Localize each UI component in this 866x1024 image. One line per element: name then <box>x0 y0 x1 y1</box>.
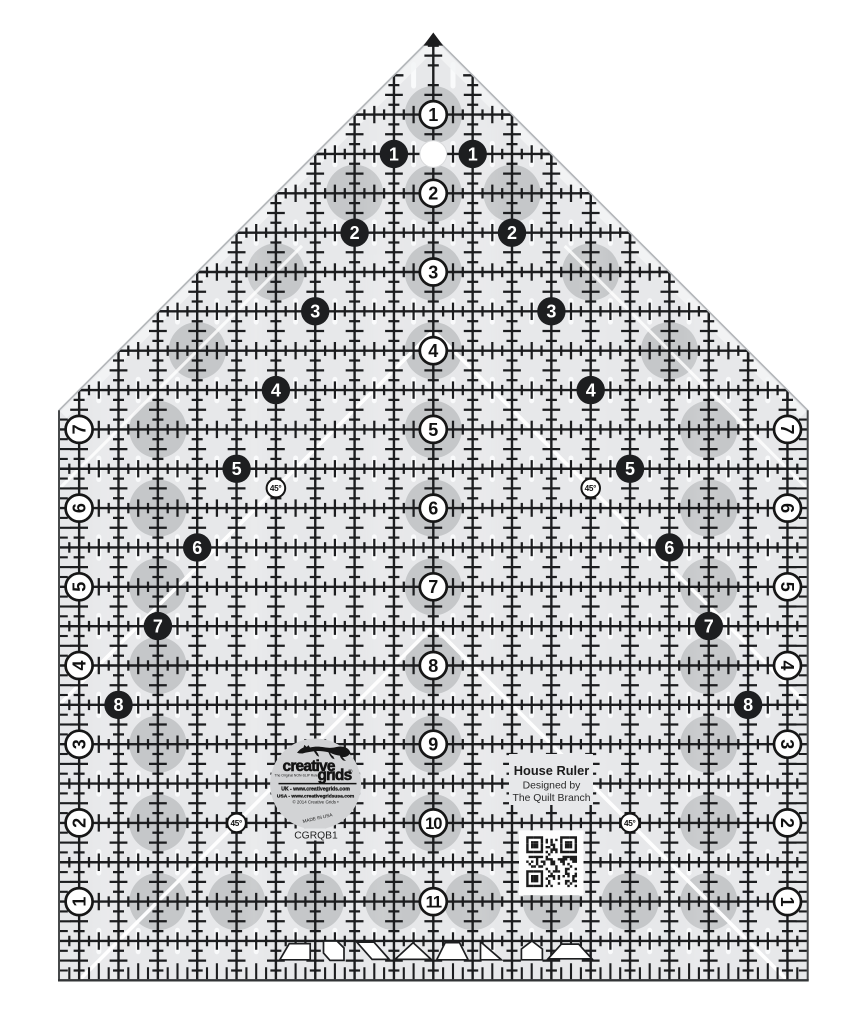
svg-text:8: 8 <box>428 656 438 676</box>
svg-text:4: 4 <box>777 660 797 670</box>
svg-text:5: 5 <box>232 459 242 479</box>
svg-text:10: 10 <box>425 815 442 833</box>
svg-text:7: 7 <box>704 617 714 637</box>
svg-text:1: 1 <box>468 144 478 164</box>
svg-text:4: 4 <box>428 341 438 361</box>
svg-text:© 2014 Creative Grids •: © 2014 Creative Grids • <box>292 799 339 804</box>
svg-text:2: 2 <box>350 223 360 243</box>
svg-text:UK - www.creativegrids.com: UK - www.creativegrids.com <box>281 786 350 792</box>
svg-text:grids: grids <box>318 767 352 784</box>
svg-text:The Quilt Branch: The Quilt Branch <box>513 793 591 804</box>
svg-text:3: 3 <box>310 302 320 322</box>
svg-text:6: 6 <box>192 538 202 558</box>
svg-text:1: 1 <box>777 897 797 907</box>
svg-text:4: 4 <box>271 380 281 400</box>
svg-text:2: 2 <box>70 818 90 828</box>
svg-text:3: 3 <box>70 739 90 749</box>
svg-text:11: 11 <box>426 894 442 912</box>
svg-text:6: 6 <box>70 503 90 513</box>
svg-text:6: 6 <box>777 503 797 513</box>
svg-text:7: 7 <box>153 617 163 637</box>
svg-text:1: 1 <box>70 897 90 907</box>
svg-text:Designed by: Designed by <box>523 781 582 792</box>
svg-text:3: 3 <box>428 262 438 282</box>
svg-text:7: 7 <box>428 577 438 597</box>
svg-text:3: 3 <box>777 739 797 749</box>
svg-text:House Ruler: House Ruler <box>514 763 589 778</box>
svg-text:8: 8 <box>743 695 753 715</box>
svg-text:45°: 45° <box>270 484 282 493</box>
svg-text:1: 1 <box>428 105 438 125</box>
svg-text:2: 2 <box>428 184 438 204</box>
svg-text:45°: 45° <box>230 819 242 828</box>
svg-text:6: 6 <box>428 499 438 519</box>
svg-text:2: 2 <box>777 818 797 828</box>
svg-text:2: 2 <box>507 223 517 243</box>
svg-text:8: 8 <box>113 695 123 715</box>
svg-text:7: 7 <box>70 424 90 434</box>
svg-text:The Original NON-SLIP Ruler: The Original NON-SLIP Ruler <box>275 774 320 778</box>
svg-text:45°: 45° <box>585 484 597 493</box>
svg-text:4: 4 <box>586 380 596 400</box>
svg-text:CGRQB1: CGRQB1 <box>294 831 338 842</box>
svg-text:7: 7 <box>777 424 797 434</box>
svg-text:45°: 45° <box>624 819 636 828</box>
svg-text:5: 5 <box>428 420 438 440</box>
svg-text:6: 6 <box>664 538 674 558</box>
svg-text:5: 5 <box>777 582 797 592</box>
svg-text:5: 5 <box>70 582 90 592</box>
svg-text:1: 1 <box>389 144 399 164</box>
svg-text:4: 4 <box>70 660 90 670</box>
svg-text:9: 9 <box>428 735 438 755</box>
svg-text:3: 3 <box>546 302 556 322</box>
svg-text:®: ® <box>348 769 353 776</box>
svg-text:5: 5 <box>625 459 635 479</box>
